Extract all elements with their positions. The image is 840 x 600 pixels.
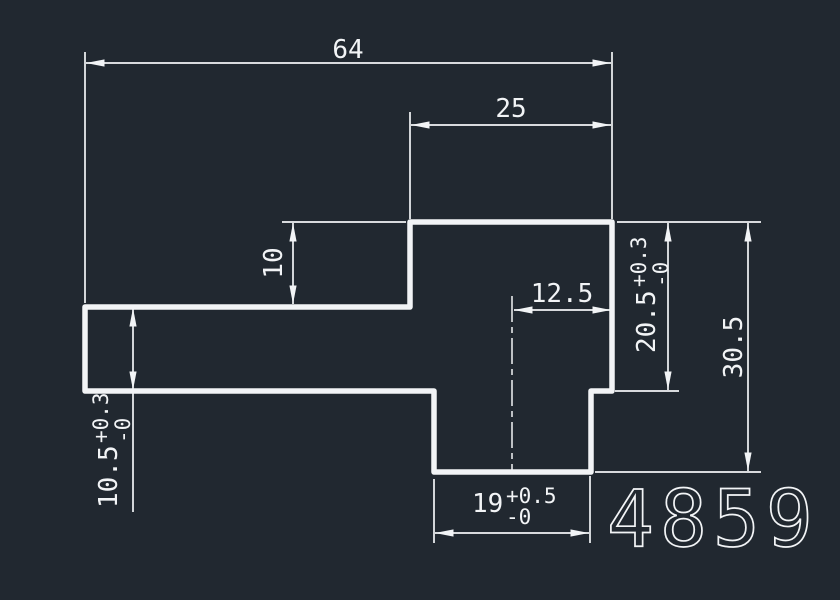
cad-model-space[interactable]: 64 25 10 12.5 20.5 +0.3 (0, 0, 840, 600)
dim-top-block-width-value[interactable]: 25 (495, 94, 526, 124)
dim-step-height[interactable]: 10 (259, 222, 406, 304)
dim-right-total-height[interactable]: 30.5 (595, 223, 761, 472)
dim-right-block-height-tol-plus[interactable]: +0.3 (627, 236, 651, 287)
dim-left-bar-height-tol-minus[interactable]: -0 (111, 418, 135, 443)
dim-center-to-right-edge[interactable]: 12.5 (514, 279, 611, 310)
dim-total-width[interactable]: 64 (85, 35, 612, 303)
dim-right-block-height-value[interactable]: 20.5 (632, 290, 662, 353)
dim-top-block-width[interactable]: 25 (410, 94, 611, 219)
part-outline[interactable] (85, 222, 612, 472)
cad-canvas[interactable]: 64 25 10 12.5 20.5 +0.3 (0, 0, 840, 600)
part-number-text[interactable]: 4859 (607, 475, 819, 565)
dim-bottom-block-width[interactable]: 19 +0.5 -0 (434, 476, 590, 543)
dim-bottom-block-width-value[interactable]: 19 (472, 489, 503, 519)
dim-left-bar-height[interactable]: 10.5 +0.3 -0 (89, 308, 135, 512)
dim-total-width-value[interactable]: 64 (332, 35, 363, 65)
dim-step-height-value[interactable]: 10 (259, 247, 289, 278)
dim-right-total-height-value[interactable]: 30.5 (719, 316, 749, 379)
dim-left-bar-height-value[interactable]: 10.5 (94, 445, 124, 508)
dim-bottom-block-width-tol-minus[interactable]: -0 (506, 505, 531, 529)
dim-right-block-height-tol-minus[interactable]: -0 (649, 262, 673, 287)
dim-center-to-right-edge-value[interactable]: 12.5 (531, 279, 594, 309)
dim-left-bar-height-tol-plus[interactable]: +0.3 (89, 392, 113, 443)
